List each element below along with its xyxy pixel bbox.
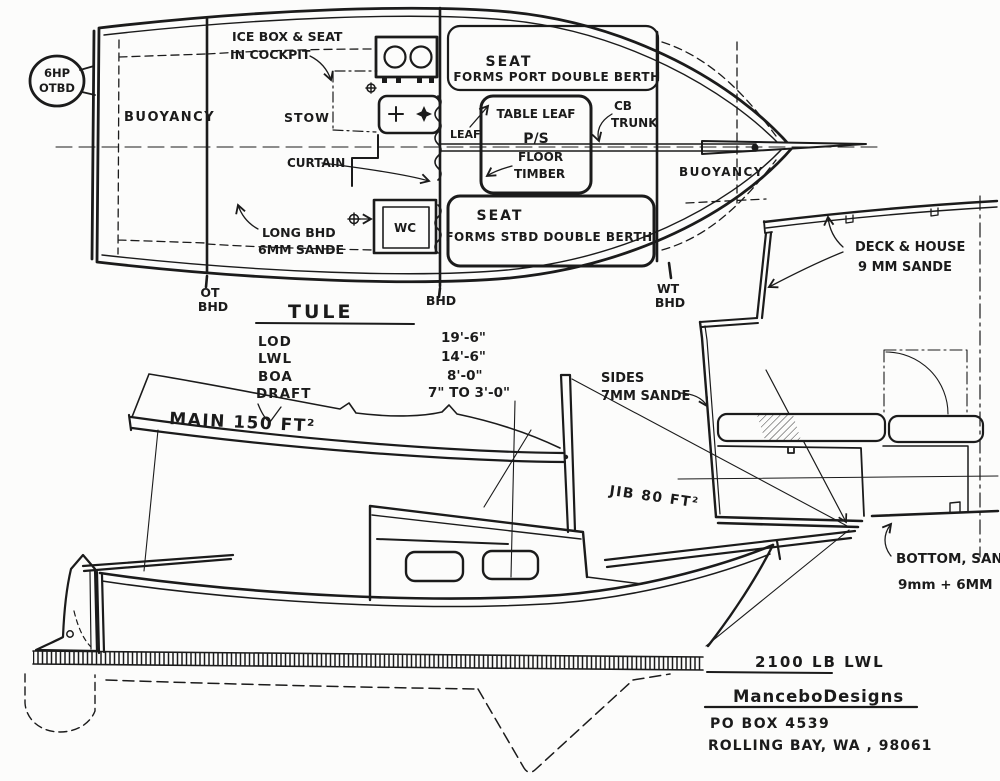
- tiller: [83, 555, 233, 571]
- port-berth-line1: SEAT: [486, 54, 533, 70]
- deck-note-line1: DECK & HOUSE: [855, 240, 965, 255]
- engine-note-line2: OTBD: [39, 81, 75, 95]
- sink-plus-icon: [389, 107, 403, 121]
- section-side-deck: [700, 318, 758, 327]
- leaf-leader-arrow: [470, 106, 488, 127]
- cb-trunk-pin: [752, 144, 759, 151]
- sink-star-icon: [416, 106, 432, 122]
- spec-label-lwl: LWL: [258, 351, 292, 367]
- icebox-note-line2: IN COCKPIT: [230, 47, 311, 62]
- floor-timber-line1: FLOOR: [518, 150, 563, 164]
- stbd-berth-line2: FORMS STBD DOUBLE BERTH: [445, 230, 652, 244]
- spec-value-draft: 7" TO 3'-0": [428, 385, 510, 401]
- seat-front-structure: [718, 446, 864, 516]
- cabin-roof-edge-line: [372, 515, 642, 584]
- bottom-note-arrow: [885, 524, 891, 556]
- section-bottom-panels: [716, 511, 998, 527]
- bhd-aft-line1: OT: [200, 285, 220, 300]
- galley-step-lines: [352, 135, 378, 186]
- wc-label: WC: [394, 221, 416, 235]
- plan-view-drawing: [30, 8, 884, 297]
- berth-cushion-outboard: [718, 414, 885, 441]
- engine-note-line1: 6HP: [44, 66, 70, 80]
- buoyancy-aft-label: BUOYANCY: [124, 110, 215, 125]
- bottom-note-line1: BOTTOM, SANDE: [896, 551, 1000, 567]
- spec-label-boa: BOA: [258, 369, 293, 385]
- bhd-fwd-line1: WT: [657, 281, 680, 296]
- bhd-aft-line2: BHD: [198, 299, 228, 314]
- section-bottom-notch: [950, 502, 960, 512]
- port-berth-line2: FORMS PORT DOUBLE BERTH: [453, 70, 660, 84]
- deck-note-line2: 9 MM SANDE: [858, 260, 952, 275]
- section-waterline: [678, 476, 998, 479]
- transom-lines: [97, 572, 104, 653]
- cb-trunk-leader-arrow: [598, 114, 612, 141]
- long-bhd-leader-arrow: [238, 205, 258, 229]
- cabin-handrail: [377, 539, 508, 544]
- hull-bottom-centerboard-dashed: [106, 674, 670, 772]
- buoyancy-fwd-label: BUOYANCY: [679, 165, 764, 179]
- section-deck-curve: [764, 201, 997, 222]
- spec-value-lod: 19'-6": [441, 330, 486, 346]
- sides-note-line2: 7MM SANDE: [601, 389, 690, 404]
- lwl-underline: [707, 672, 832, 673]
- displacement-label: 2100 LB LWL: [755, 653, 885, 671]
- boat-design-sheet: 6HP OTBD BUOYANCY ICE BOX & SEAT IN COCK…: [0, 0, 1000, 781]
- deck-note-arrow-up: [828, 217, 843, 247]
- sides-note-line1: SIDES: [601, 371, 644, 386]
- labels: 6HP OTBD BUOYANCY ICE BOX & SEAT IN COCK…: [39, 29, 1000, 754]
- designer-address-line1: PO BOX 4539: [710, 716, 830, 732]
- stow-label: STOW: [284, 110, 330, 125]
- bottom-note-line2: 9mm + 6MM: [898, 577, 993, 593]
- door-swing-arc: [886, 352, 948, 414]
- bow-stem: [708, 545, 773, 646]
- drawing-canvas: 6HP OTBD BUOYANCY ICE BOX & SEAT IN COCK…: [0, 0, 1000, 781]
- spec-value-lwl: 14'-6": [441, 349, 486, 365]
- long-bhd-line2: 6MM SANDE: [258, 242, 344, 257]
- bhd-fwd-line2: BHD: [655, 295, 685, 310]
- table-label-line2: P/S: [523, 131, 548, 147]
- boat-name-title: TULE: [288, 301, 353, 323]
- designer-name: ManceboDesigns: [733, 687, 904, 706]
- icebox-note-line1: ICE BOX & SEAT: [232, 29, 343, 44]
- section-house-side: [757, 233, 771, 318]
- datum-markers: [348, 83, 376, 225]
- spec-value-boa: 8'-0": [447, 368, 483, 384]
- table-label-line1: TABLE LEAF: [496, 107, 575, 121]
- floor-timber-line2: TIMBER: [514, 167, 565, 181]
- long-bhd-line1: LONG BHD: [262, 225, 336, 240]
- spec-label-draft: DRAFT: [256, 386, 311, 402]
- leaf-label: LEAF: [450, 128, 481, 141]
- bhd-mid-label: BHD: [426, 293, 456, 308]
- plan-dashdot-lines: [333, 71, 377, 132]
- specs-title-underline: [256, 323, 414, 324]
- door-dashdot-outline: [884, 350, 967, 414]
- cabin-window-aft: [406, 552, 463, 581]
- mainsail-area-label: MAIN 150 FT²: [169, 409, 316, 437]
- plan-hull-inner-line: [102, 16, 783, 273]
- deck-note-arrow-side: [769, 252, 843, 287]
- section-deck-notches: [846, 208, 938, 223]
- curtain-label: CURTAIN: [287, 156, 345, 170]
- icebox-leader-arrow: [310, 56, 331, 80]
- designer-address-line2: ROLLING BAY, WA , 98061: [708, 738, 932, 754]
- cb-trunk-line1: CB: [614, 99, 632, 113]
- rudder-blade-dashed: [25, 674, 95, 732]
- spec-label-lod: LOD: [258, 334, 292, 350]
- stbd-berth-line1: SEAT: [477, 208, 524, 224]
- floor-timber-leader-arrow: [487, 166, 512, 176]
- jib-area-label: JIB 80 FT²: [607, 483, 700, 512]
- berth-cushion-inboard: [889, 416, 983, 442]
- cabin-lines: [370, 506, 587, 600]
- cb-trunk-line2: TRUNK: [611, 116, 658, 130]
- rudder-head-bracket: [36, 555, 97, 651]
- stove-burner-icons: [385, 47, 432, 68]
